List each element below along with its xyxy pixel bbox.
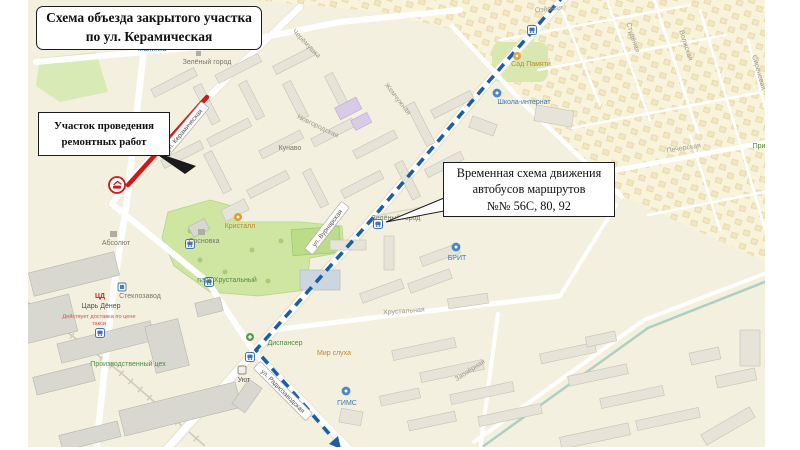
page-margin-left bbox=[0, 0, 28, 450]
poi-label-gims: ГИМС bbox=[337, 400, 357, 407]
poi-label-sad-pamyati: Сад Памяти bbox=[511, 61, 551, 68]
roadworks-callout-line2: ремонтных работ bbox=[39, 134, 169, 150]
poi-label-steklozavod: Стеклозавод bbox=[119, 293, 161, 300]
poi-label-tsar-doner-note: такси bbox=[92, 321, 106, 327]
title-line1: Схема объезда закрытого участка bbox=[37, 9, 261, 28]
title-line2: по ул. Керамическая bbox=[37, 28, 261, 47]
detour-callout-line3: №№ 56С, 80, 92 bbox=[444, 198, 614, 215]
page-margin-right bbox=[765, 0, 800, 450]
detour-callout-line2: автобусов маршрутов bbox=[444, 181, 614, 198]
poi-label-mir-slukha: Мир слуха bbox=[317, 350, 351, 357]
dispanser-cross-icon bbox=[246, 333, 254, 341]
poi-label-tsar-doner-logo: ЦД bbox=[95, 293, 105, 300]
bus-stop-icon bbox=[96, 329, 105, 338]
absolut-icon bbox=[110, 231, 117, 237]
detour-callout-line1: Временная схема движения bbox=[444, 165, 614, 182]
poi-label-park-khrustalny: парк Хрустальный bbox=[197, 276, 257, 284]
map-canvas: ул. Керамическая ул. Вурнарская ул. Ради… bbox=[0, 0, 800, 450]
poi-label-tsar-doner: Царь Дёнер bbox=[82, 303, 121, 310]
roadworks-icon bbox=[109, 177, 125, 193]
poi-label-kunavo: Кунаво bbox=[279, 145, 302, 152]
poi-label-dispanser: Диспансер bbox=[268, 340, 303, 347]
poi-label-uyut: Уют bbox=[238, 377, 251, 384]
roadworks-callout-box: Участок проведения ремонтных работ bbox=[38, 112, 170, 156]
detour-callout-box: Временная схема движения автобусов маршр… bbox=[443, 162, 615, 217]
title-box: Схема объезда закрытого участка по ул. К… bbox=[36, 6, 262, 50]
poi-label-brit: БРИТ bbox=[448, 255, 467, 262]
sosnovka-icon bbox=[198, 229, 205, 235]
poi-label-tsar-doner-note: Действует доставка по цене bbox=[62, 313, 135, 320]
poi-label-shkola-internat: Школа-интернат bbox=[497, 99, 551, 106]
poi-label-proizvodstvenny-tsekh: Производственный цех bbox=[90, 360, 166, 368]
zeleny-gorod-icon bbox=[196, 51, 201, 56]
poi-label-sosnovka: Сосновка bbox=[188, 238, 219, 245]
poi-label-zeleny-gorod: Зелёный город bbox=[183, 58, 232, 66]
poi-label-kristall: Кристалл bbox=[225, 223, 256, 230]
roadworks-callout-line1: Участок проведения bbox=[39, 118, 169, 134]
poi-label-absolut: Абсолют bbox=[102, 239, 131, 247]
detour-scheme-figure: ул. Керамическая ул. Вурнарская ул. Ради… bbox=[0, 0, 800, 450]
bus-stop-icon bbox=[246, 353, 255, 362]
uyut-icon bbox=[238, 366, 246, 374]
bus-stop-icon bbox=[528, 26, 537, 35]
